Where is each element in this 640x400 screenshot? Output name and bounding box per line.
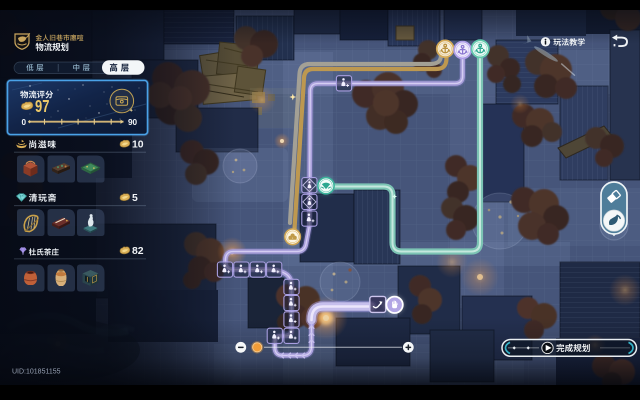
svg-text:UID:101851155: UID:101851155 [12,369,61,376]
svg-text:0: 0 [22,118,27,127]
svg-text:90: 90 [128,118,138,127]
svg-text:97: 97 [35,97,49,116]
svg-text:10: 10 [132,139,144,150]
svg-text:5: 5 [132,193,138,204]
svg-text:82: 82 [132,246,144,257]
